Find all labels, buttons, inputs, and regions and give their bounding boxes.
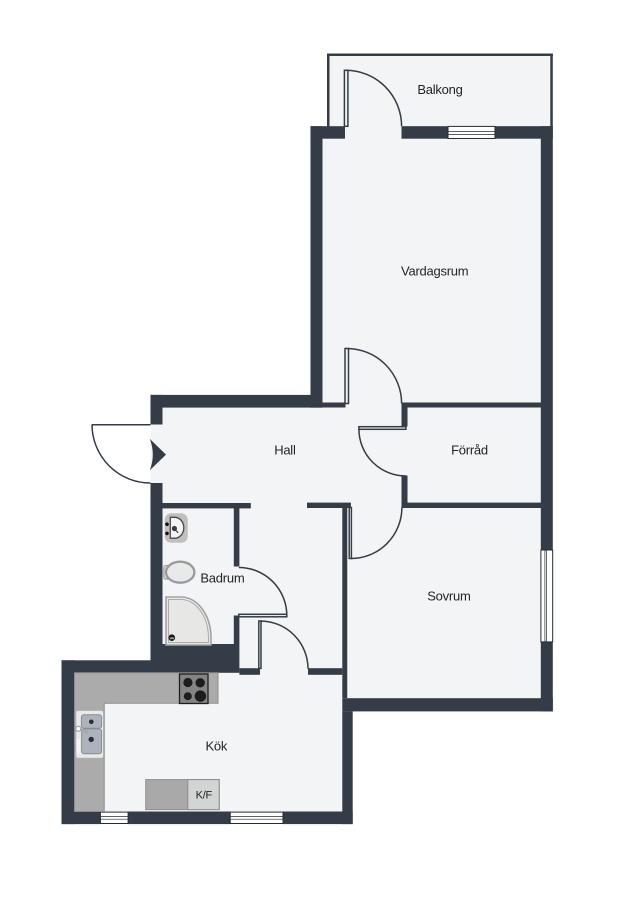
svg-text:Hall: Hall	[274, 442, 296, 457]
svg-text:Förråd: Förråd	[451, 443, 488, 458]
svg-text:Sovrum: Sovrum	[427, 588, 470, 603]
svg-text:Kök: Kök	[205, 739, 227, 754]
svg-text:K/F: K/F	[196, 790, 213, 802]
svg-text:Balkong: Balkong	[417, 82, 462, 97]
svg-text:Vardagsrum: Vardagsrum	[401, 264, 468, 279]
svg-text:Badrum: Badrum	[200, 571, 244, 586]
